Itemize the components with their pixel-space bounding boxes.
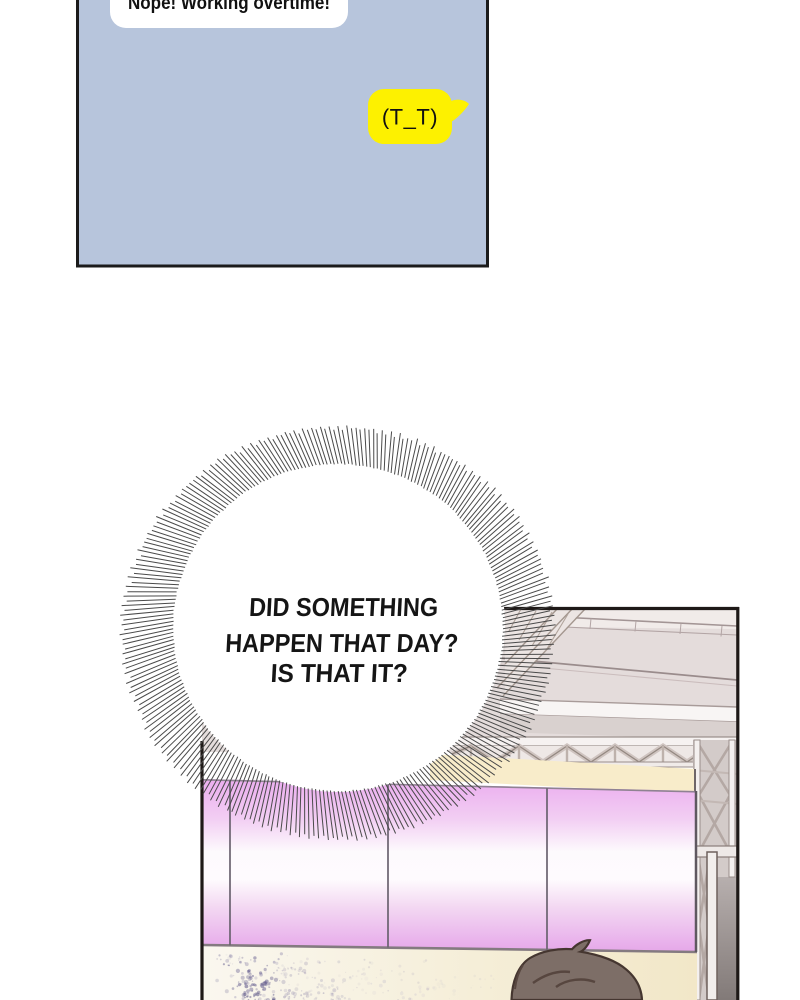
svg-text:Nope! Working overtime!: Nope! Working overtime! <box>128 0 330 14</box>
svg-text:DID SOMETHING: DID SOMETHING <box>248 592 439 622</box>
svg-text:IS THAT IT?: IS THAT IT? <box>270 658 409 688</box>
svg-text:(T_T): (T_T) <box>382 105 438 130</box>
svg-text:HAPPEN THAT DAY?: HAPPEN THAT DAY? <box>225 628 460 658</box>
